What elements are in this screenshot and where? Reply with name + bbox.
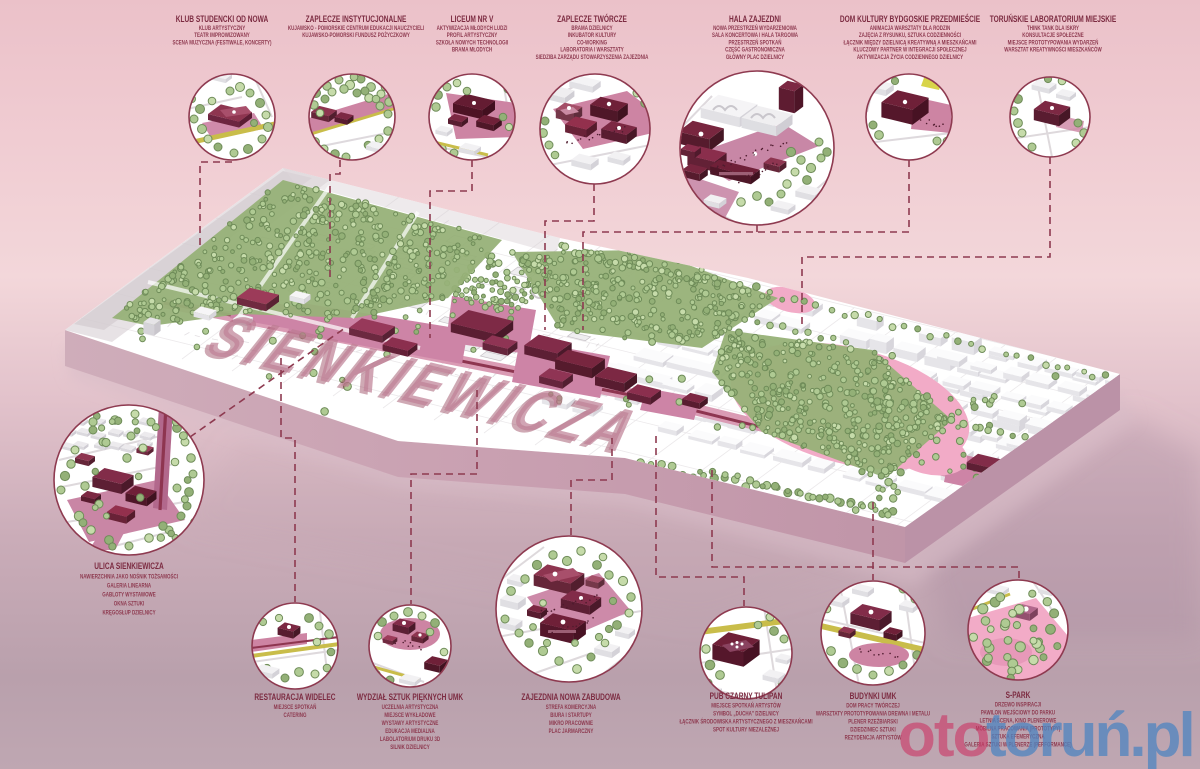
svg-text:INKUBATOR KULTURY: INKUBATOR KULTURY [568, 33, 617, 40]
svg-text:PLAC JARMARCZNY: PLAC JARMARCZNY [549, 728, 594, 735]
svg-text:STREFA KOMERCYJNA: STREFA KOMERCYJNA [546, 704, 597, 711]
svg-text:ZAPLECZE INSTYTUCJONALNE: ZAPLECZE INSTYTUCJONALNE [306, 14, 407, 24]
svg-text:REZYDENCJA ARTYSTÓW: REZYDENCJA ARTYSTÓW [845, 733, 902, 742]
svg-text:LICEUM NR V: LICEUM NR V [451, 14, 494, 24]
svg-text:BUDYNKI UMK: BUDYNKI UMK [850, 691, 897, 701]
svg-text:AKTYWIZACJA MŁODYCH LUDZI: AKTYWIZACJA MŁODYCH LUDZI [437, 25, 508, 32]
svg-text:S-PARK: S-PARK [1006, 690, 1031, 700]
svg-text:CO-WORKING: CO-WORKING [577, 40, 607, 47]
svg-text:KRĘGOSŁUP DZIELNICY: KRĘGOSŁUP DZIELNICY [102, 610, 155, 617]
svg-text:ZAJEZDNIA NOWA ZABUDOWA: ZAJEZDNIA NOWA ZABUDOWA [521, 692, 620, 702]
svg-text:KONSULTACJE SPOŁECZNE: KONSULTACJE SPOŁECZNE [1022, 33, 1084, 40]
svg-text:toruń.pl: toruń.pl [986, 701, 1193, 769]
svg-text:LABOLATORIUM DRUKU 3D: LABOLATORIUM DRUKU 3D [380, 736, 440, 743]
svg-text:RESTAURACJA WIDELEC: RESTAURACJA WIDELEC [254, 692, 335, 702]
svg-text:GŁÓWNY PLAC DZIELNICY: GŁÓWNY PLAC DZIELNICY [726, 52, 785, 61]
svg-text:ŁĄCZNIK ŚRODOWISKA ARTYSTYCZNE: ŁĄCZNIK ŚRODOWISKA ARTYSTYCZNEGO Z MIESZ… [679, 717, 812, 726]
svg-text:NOWA PRZESTRZEŃ WYDARZENIOWA: NOWA PRZESTRZEŃ WYDARZENIOWA [713, 23, 797, 32]
svg-text:PRZESTRZEŃ SPOTKAŃ: PRZESTRZEŃ SPOTKAŃ [729, 37, 782, 46]
svg-text:DOM PRACY TWÓRCZEJ: DOM PRACY TWÓRCZEJ [846, 701, 900, 710]
svg-text:NAWIERZCHNIA JAKO NOŚNIK TOŻSA: NAWIERZCHNIA JAKO NOŚNIK TOŻSAMOŚCI [80, 573, 178, 581]
svg-text:SCENA MUZYCZNA (FESTIWALE, KON: SCENA MUZYCZNA (FESTIWALE, KONCERTY) [172, 40, 271, 47]
svg-text:ANIMACJA WARSZTATY DLA RODZIN: ANIMACJA WARSZTATY DLA RODZIN [870, 25, 950, 32]
svg-text:ZAPLECZE TWÓRCZE: ZAPLECZE TWÓRCZE [557, 14, 627, 24]
svg-text:KLUB ARTYSTYCZNY: KLUB ARTYSTYCZNY [199, 25, 246, 32]
svg-text:EDUKACJA MEDIALNA: EDUKACJA MEDIALNA [385, 728, 435, 735]
svg-text:DZIEDZINIEC SZTUKI: DZIEDZINIEC SZTUKI [850, 727, 896, 734]
svg-text:THINK TANK DLA ISKRY: THINK TANK DLA ISKRY [1027, 25, 1079, 32]
svg-text:KUJAWSKO-POMORSKI FUNDUSZ POŻY: KUJAWSKO-POMORSKI FUNDUSZ POŻYCZKOWY [302, 31, 410, 39]
svg-text:SZKOŁA NOWYCH TECHNOLOGII: SZKOŁA NOWYCH TECHNOLOGII [436, 40, 509, 47]
svg-text:KLUCZOWY PARTNER W INTEGRACJI: KLUCZOWY PARTNER W INTEGRACJI SPOŁECZNEJ [853, 47, 966, 54]
svg-text:GALERIA LINEARNA: GALERIA LINEARNA [107, 583, 151, 590]
svg-text:PUB CZARNY TULIPAN: PUB CZARNY TULIPAN [710, 691, 783, 701]
svg-text:SPOT KULTURY NIEZALEŻNEJ: SPOT KULTURY NIEZALEŻNEJ [713, 726, 779, 734]
svg-text:LABORATORIA I WARSZTATY: LABORATORIA I WARSZTATY [560, 47, 624, 54]
svg-text:WYDZIAŁ SZTUK PIĘKNYCH UMK: WYDZIAŁ SZTUK PIĘKNYCH UMK [357, 692, 463, 702]
svg-text:OKNA SZTUKI: OKNA SZTUKI [114, 601, 145, 608]
svg-text:BIURA I STARTUPY: BIURA I STARTUPY [550, 712, 592, 719]
svg-text:ULICA SIENKIEWICZA: ULICA SIENKIEWICZA [94, 561, 164, 571]
svg-text:MIEJSCE SPOTKAŃ: MIEJSCE SPOTKAŃ [274, 702, 317, 711]
svg-text:SILNIK DZIELNICY: SILNIK DZIELNICY [390, 744, 430, 751]
svg-text:BRAMA DZIELNICY: BRAMA DZIELNICY [571, 25, 613, 32]
svg-text:MIEJSCE PROTOTYPOWANIA WYDARZE: MIEJSCE PROTOTYPOWANIA WYDARZEŃ [1008, 37, 1099, 46]
svg-text:SYMBOL „DUCHA” DZIELNICY: SYMBOL „DUCHA” DZIELNICY [713, 711, 779, 718]
svg-text:oto: oto [898, 701, 989, 769]
svg-text:AKTYWIZACJA ŻYCIA CODZIENNEGO: AKTYWIZACJA ŻYCIA CODZIENNEGO DZIELNICY [857, 53, 964, 61]
svg-text:WARSZTAT KREATYWNOŚCI MIESZKAŃ: WARSZTAT KREATYWNOŚCI MIESZKAŃCÓW [1004, 45, 1102, 54]
svg-text:PLENER RZEŹBIARSKI: PLENER RZEŹBIARSKI [848, 717, 898, 726]
svg-text:TEATR IMPROWIZOWANY: TEATR IMPROWIZOWANY [194, 33, 250, 40]
svg-text:KUJAWSKO - POMORSKIE CENTRUM E: KUJAWSKO - POMORSKIE CENTRUM EDUKACJI NA… [288, 25, 425, 32]
svg-text:PROFIL ARTYSTYCZNY: PROFIL ARTYSTYCZNY [447, 33, 498, 40]
svg-text:TORUŃSKIE LABORATORIUM MIEJSKI: TORUŃSKIE LABORATORIUM MIEJSKIE [990, 14, 1117, 24]
svg-text:SALA KONCERTOWA I HALA TARGOWA: SALA KONCERTOWA I HALA TARGOWA [712, 33, 798, 40]
svg-text:MIEJSCE WYKŁADOWE: MIEJSCE WYKŁADOWE [384, 712, 435, 719]
svg-text:GABLOTY WYSTAWOWE: GABLOTY WYSTAWOWE [102, 592, 156, 599]
svg-text:CZĘŚĆ GASTRONOMICZNA: CZĘŚĆ GASTRONOMICZNA [725, 45, 785, 54]
svg-text:ZAJĘCIA Z RYSUNKU, SZTUKA CODZ: ZAJĘCIA Z RYSUNKU, SZTUKA CODZIENNOŚCI [859, 31, 962, 39]
svg-text:DOM KULTURY BYDGOSKIE PRZEDMIE: DOM KULTURY BYDGOSKIE PRZEDMIEŚCIE [840, 14, 981, 24]
svg-text:ŁĄCZNIK MIĘDZY DZIELNICĄ KREAT: ŁĄCZNIK MIĘDZY DZIELNICĄ KREATYWNĄ A MIE… [844, 37, 977, 46]
svg-text:KLUB STUDENCKI OD NOWA: KLUB STUDENCKI OD NOWA [176, 14, 269, 24]
svg-text:HALA ZAJEZDNI: HALA ZAJEZDNI [729, 14, 781, 24]
svg-text:UCZELNIA ARTYSTYCZNA: UCZELNIA ARTYSTYCZNA [382, 704, 439, 711]
svg-text:SIEDZIBA ZARZĄDU STOWARZYSZEN: SIEDZIBA ZARZĄDU STOWARZYSZENIA ZAJEZDNI… [536, 54, 649, 61]
svg-text:MIKRO PRACOWNIE: MIKRO PRACOWNIE [549, 720, 593, 727]
svg-text:MIEJSCE SPOTKAŃ ARTYSTÓW: MIEJSCE SPOTKAŃ ARTYSTÓW [711, 701, 781, 710]
svg-text:WYSTAWY ARTYSTYCZNE: WYSTAWY ARTYSTYCZNE [382, 720, 439, 727]
svg-text:CATERING: CATERING [283, 712, 306, 719]
svg-text:BRAMA MŁODYCH: BRAMA MŁODYCH [452, 47, 492, 54]
